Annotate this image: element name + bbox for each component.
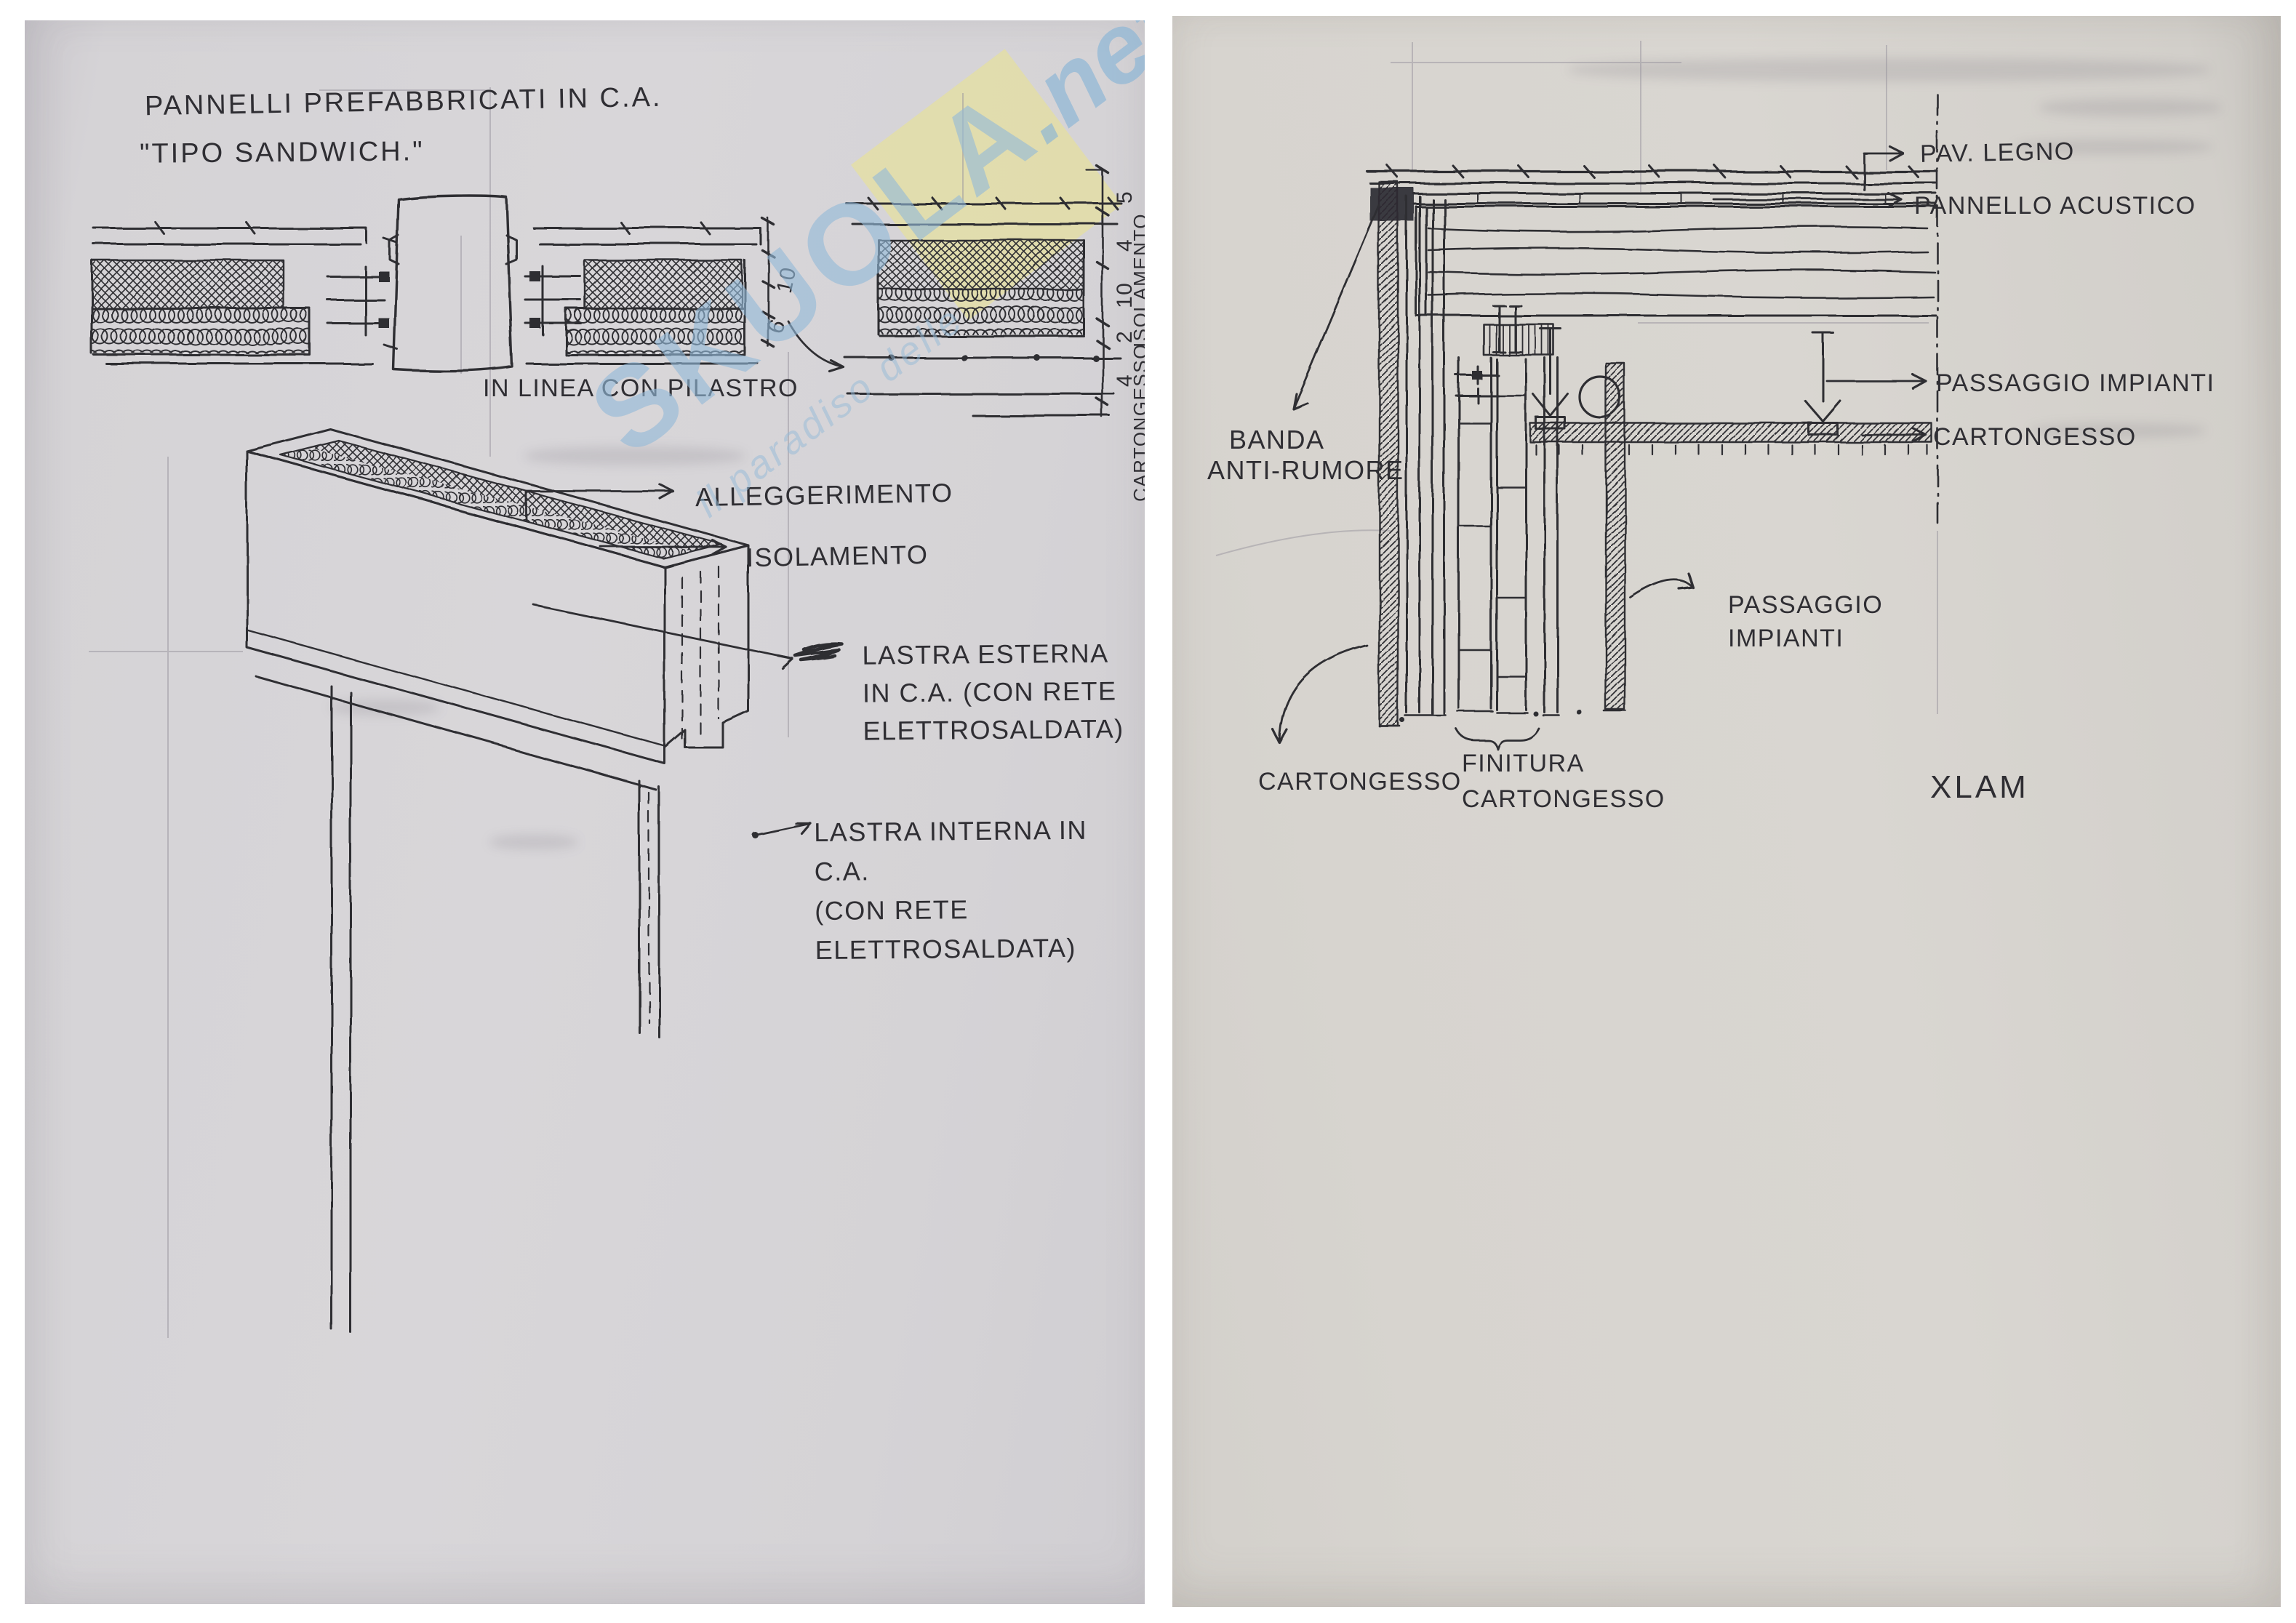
label-passaggio-impianti-mid: PASSAGGIO IMPIANTI	[1728, 589, 1883, 656]
leader-arrows	[1273, 146, 1926, 749]
label-isolamento: ISOLAMENTO	[746, 537, 929, 577]
floor-slab	[1367, 166, 1937, 316]
dim-seg-5: 5	[1110, 191, 1140, 204]
xlam-wall	[1370, 182, 1626, 726]
dim-label-isolamento: ISOLAMENTO	[1127, 213, 1145, 348]
scanned-page-right: PAV. LEGNO PANNELLO ACUSTICO PASSAGGIO I…	[1172, 16, 2281, 1607]
label-lastra-interna: LASTRA INTERNA IN C.A. (CON RETE ELETTRO…	[814, 810, 1145, 970]
plan-section-left	[92, 223, 397, 364]
label-banda-line2: ANTI-RUMORE	[1207, 452, 1404, 489]
xlam-corner-detail-drawing	[1172, 16, 2281, 1607]
scanned-page-left: PANNELLI PREFABBRICATI IN C.A. "TIPO SAN…	[25, 20, 1145, 1604]
label-passaggio-impianti-top: PASSAGGIO IMPIANTI	[1936, 366, 2215, 401]
pilaster-plan	[390, 196, 516, 371]
label-pannello-acustico: PANNELLO ACUSTICO	[1914, 189, 2196, 224]
label-cartongesso-bottom: CARTONGESSO	[1258, 765, 1462, 800]
label-pav-legno: PAV. LEGNO	[1920, 135, 2076, 172]
label-xlam: XLAM	[1930, 765, 2029, 810]
label-cartongesso-right: CARTONGESSO	[1933, 420, 2137, 455]
label-lastra-esterna: LASTRA ESTERNA IN C.A. (CON RETE ELETTRO…	[862, 634, 1124, 750]
axonometric-panel	[247, 429, 748, 1332]
page-subtitle: "TIPO SANDWICH."	[140, 132, 425, 174]
dim-label-cartongesso: CARTONGESSO	[1127, 343, 1145, 502]
scribble-strikeout	[796, 644, 842, 660]
label-finitura-cartongesso: FINITURA CARTONGESSO	[1462, 746, 1665, 818]
